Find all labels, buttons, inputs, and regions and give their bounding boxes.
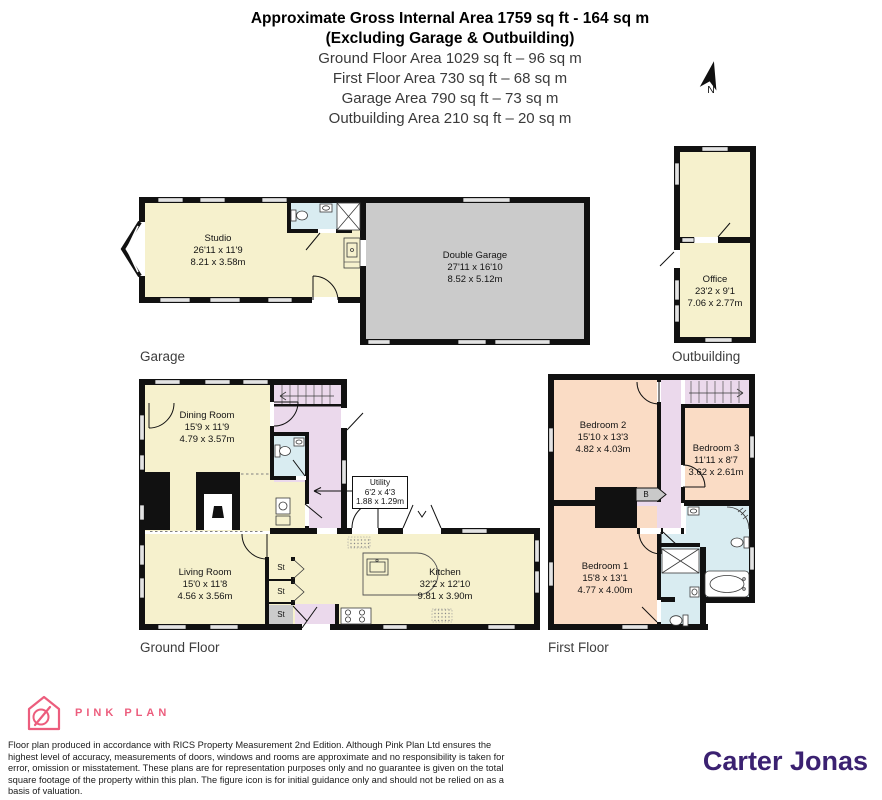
carter-jonas-logo: Carter Jonas (703, 746, 868, 777)
header-title: Approximate Gross Internal Area 1759 sq … (18, 9, 882, 29)
room-label-bedroom2: Bedroom 2 15'10 x 13'3 4.82 x 4.03m (576, 420, 631, 456)
room-name: Kitchen (418, 567, 473, 579)
ensuite-shower (662, 549, 699, 573)
room-dims-metric: 1.88 x 1.29m (354, 497, 406, 507)
room-label-studio: Studio 26'11 x 11'9 8.21 x 3.58m (191, 233, 246, 269)
wc-sink (294, 438, 304, 446)
outbuilding-plan (660, 146, 756, 343)
header-outbuilding-area: Outbuilding Area 210 sq ft – 20 sq m (18, 109, 882, 129)
garage-sink (320, 204, 332, 212)
garage-lobby-counter (344, 238, 360, 268)
room-dims-metric: 4.79 x 3.57m (180, 434, 235, 446)
north-label: N (707, 84, 715, 96)
room-label-bedroom1: Bedroom 1 15'8 x 13'1 4.77 x 4.00m (578, 561, 633, 597)
kitchen-appliance-area (348, 537, 370, 548)
ensuite-sink (690, 587, 699, 597)
room-dims-imperial: 15'8 x 13'1 (578, 573, 633, 585)
pink-plan-label: PINK PLAN (75, 707, 170, 719)
room-dims-imperial: 15'10 x 13'3 (576, 432, 631, 444)
room-dims-imperial: 11'11 x 8'7 (689, 455, 744, 467)
room-name: Bedroom 3 (689, 443, 744, 455)
garage-shower (337, 203, 360, 230)
kitchen-stove (341, 608, 371, 624)
garage-plan (123, 197, 590, 345)
room-dims-metric: 7.06 x 2.77m (688, 298, 743, 310)
pink-plan-brand: PINK PLAN (26, 694, 170, 732)
garage-section-label: Garage (140, 349, 185, 364)
room-dims-metric: 9.81 x 3.90m (418, 591, 473, 603)
outbuilding-section-label: Outbuilding (672, 349, 740, 364)
room-dims-imperial: 26'11 x 11'9 (191, 245, 246, 257)
storage-label-3: St (277, 610, 285, 619)
header-garage-area: Garage Area 790 sq ft – 73 sq m (18, 89, 882, 109)
room-dims-imperial: 15'0 x 11'8 (178, 579, 233, 591)
room-dims-imperial: 23'2 x 9'1 (688, 286, 743, 298)
room-dims-metric: 4.56 x 3.56m (178, 591, 233, 603)
room-name: Dining Room (180, 410, 235, 422)
room-name: Bedroom 1 (578, 561, 633, 573)
disclaimer-text: Floor plan produced in accordance with R… (8, 740, 505, 798)
pink-plan-house-icon (26, 694, 62, 732)
chimney-breast (595, 487, 637, 528)
room-dims-metric: 4.77 x 4.00m (578, 585, 633, 597)
ensuite-toilet (670, 615, 688, 626)
room-label-double-garage: Double Garage 27'11 x 16'10 8.52 x 5.12m (443, 250, 507, 286)
room-dims-imperial: 27'11 x 16'10 (443, 262, 507, 274)
room-name: Living Room (178, 567, 233, 579)
bathroom-bath (705, 571, 749, 597)
garage-toilet (291, 210, 308, 221)
bathroom-sink (688, 507, 699, 515)
utility-callout: Utility 6'2 x 4'3 1.88 x 1.29m (352, 476, 408, 509)
room-name: Bedroom 2 (576, 420, 631, 432)
room-label-office: Office 23'2 x 9'1 7.06 x 2.77m (688, 274, 743, 310)
room-label-kitchen: Kitchen 32'2 x 12'10 9.81 x 3.90m (418, 567, 473, 603)
room-name: Double Garage (443, 250, 507, 262)
first-floor-section-label: First Floor (548, 640, 609, 655)
room-name: Studio (191, 233, 246, 245)
header-subtitle: (Excluding Garage & Outbuilding) (18, 29, 882, 49)
room-dims-imperial: 15'9 x 11'9 (180, 422, 235, 434)
storage-label-2: St (277, 587, 285, 596)
room-label-living: Living Room 15'0 x 11'8 4.56 x 3.56m (178, 567, 233, 603)
header-ground-floor-area: Ground Floor Area 1029 sq ft – 96 sq m (18, 49, 882, 69)
room-dims-metric: 8.21 x 3.58m (191, 257, 246, 269)
room-name: Office (688, 274, 743, 286)
room-dims-metric: 4.82 x 4.03m (576, 444, 631, 456)
storage-label-1: St (277, 563, 285, 572)
room-label-bedroom3: Bedroom 3 11'11 x 8'7 3.62 x 2.61m (689, 443, 744, 479)
header: Approximate Gross Internal Area 1759 sq … (18, 9, 882, 129)
room-dims-imperial: 32'2 x 12'10 (418, 579, 473, 591)
floorplan-page: Approximate Gross Internal Area 1759 sq … (0, 0, 882, 800)
kitchen-appliance-area2 (432, 609, 452, 622)
ground-floor-section-label: Ground Floor (140, 640, 220, 655)
bathroom-toilet (731, 537, 749, 548)
room-dims-metric: 3.62 x 2.61m (689, 467, 744, 479)
room-label-dining: Dining Room 15'9 x 11'9 4.79 x 3.57m (180, 410, 235, 446)
room-dims-metric: 8.52 x 5.12m (443, 274, 507, 286)
header-first-floor-area: First Floor Area 730 sq ft – 68 sq m (18, 69, 882, 89)
boiler-label: B (643, 490, 648, 499)
